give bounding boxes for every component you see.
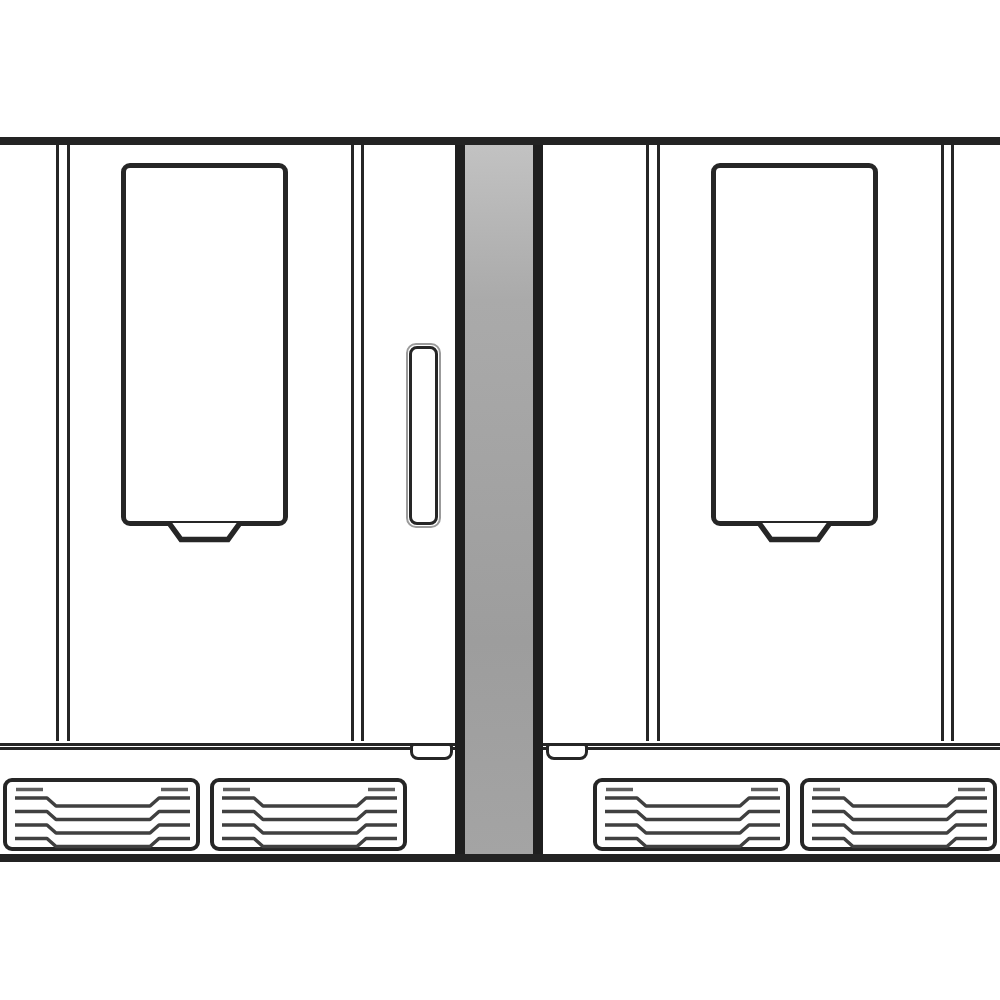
door-seam-line <box>646 145 649 741</box>
wall-pillar-left-edge <box>455 145 465 854</box>
left-appliance <box>0 0 1000 1000</box>
dispenser-spout-icon <box>166 522 243 548</box>
door-seam-line <box>361 145 364 741</box>
plinth-latch <box>410 743 453 760</box>
vent-grille <box>593 778 790 851</box>
right-appliance <box>0 0 1000 1000</box>
dispenser-spout-icon <box>756 522 833 548</box>
vent-grille <box>800 778 997 851</box>
door-bottom-edge <box>0 743 455 746</box>
door-bottom-edge <box>543 743 1000 746</box>
door-seam-line <box>67 145 70 741</box>
door-window <box>711 163 878 526</box>
door-seam-line <box>657 145 660 741</box>
door-handle[interactable] <box>406 343 441 528</box>
vent-grille <box>210 778 407 851</box>
door-seam-line <box>941 145 944 741</box>
plinth-top-edge <box>0 747 455 750</box>
vent-grille <box>3 778 200 851</box>
plinth-latch <box>546 743 588 760</box>
door-seam-line <box>951 145 954 741</box>
plinth-top-edge <box>543 747 1000 750</box>
door-window <box>121 163 288 526</box>
door-seam-line <box>351 145 354 741</box>
door-handle-recess <box>409 346 438 525</box>
illustration-canvas <box>0 0 1000 1000</box>
wall-pillar-face <box>465 145 533 854</box>
floor-edge <box>0 854 1000 862</box>
wall-pillar <box>0 0 1000 1000</box>
wall-pillar-right-edge <box>533 145 543 854</box>
niche-top-edge <box>0 137 1000 145</box>
door-seam-line <box>56 145 59 741</box>
